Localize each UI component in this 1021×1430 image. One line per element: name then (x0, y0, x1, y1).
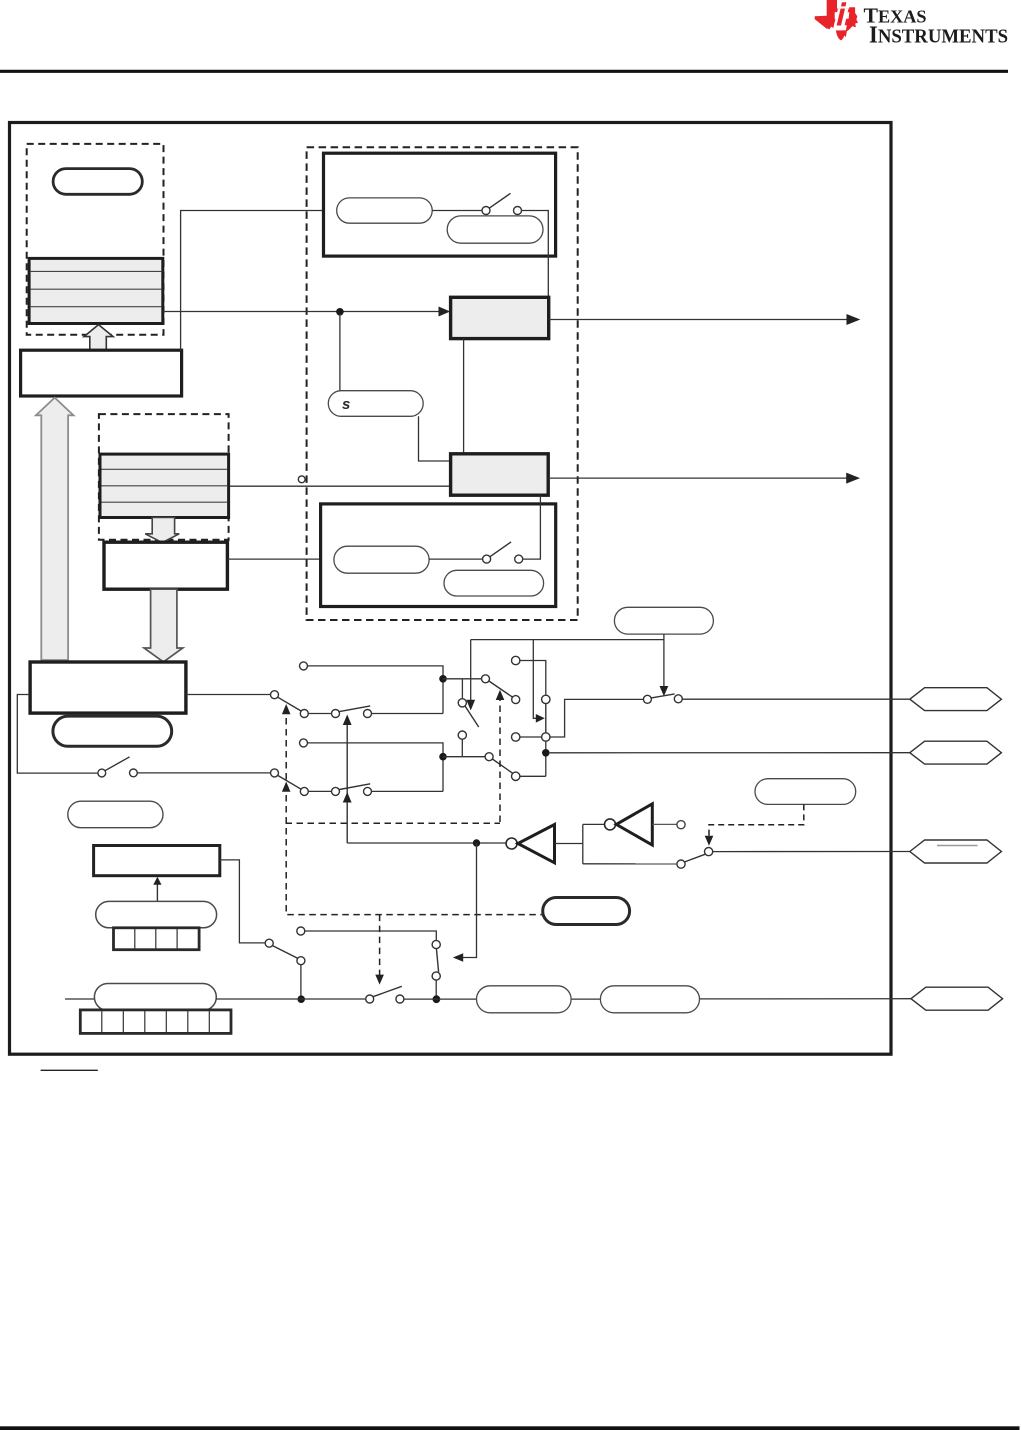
svg-text:INSTRUMENTS: INSTRUMENTS (869, 22, 1008, 49)
svg-text:s: s (342, 396, 350, 413)
